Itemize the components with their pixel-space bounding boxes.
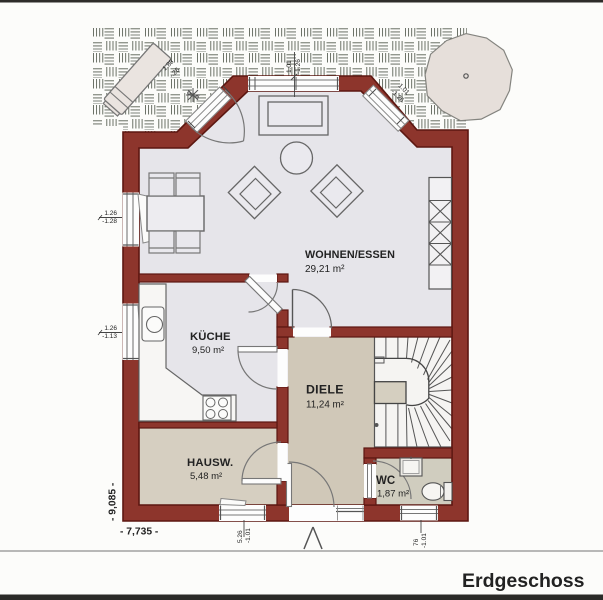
- svg-text:Erdgeschoss: Erdgeschoss: [462, 570, 585, 592]
- svg-text:76: 76: [413, 538, 420, 546]
- svg-text:-1.01: -1.01: [245, 528, 252, 543]
- svg-text:DIELE: DIELE: [306, 383, 344, 397]
- svg-text:WOHNEN/ESSEN: WOHNEN/ESSEN: [305, 249, 395, 261]
- svg-text:WC: WC: [376, 475, 395, 487]
- svg-text:29,21 m²: 29,21 m²: [305, 264, 345, 275]
- svg-text:1.26: 1.26: [104, 210, 117, 217]
- svg-text:- 7,735 -: - 7,735 -: [120, 527, 159, 538]
- svg-text:-1.13: -1.13: [102, 333, 117, 340]
- svg-text:1,87 m²: 1,87 m²: [377, 489, 409, 500]
- svg-text:-1.28: -1.28: [102, 218, 117, 225]
- svg-text:- 9,085 -: - 9,085 -: [108, 482, 119, 521]
- svg-text:KÜCHE: KÜCHE: [190, 330, 231, 343]
- svg-text:1.01: 1.01: [286, 60, 293, 73]
- svg-text:11,24 m²: 11,24 m²: [306, 400, 345, 411]
- svg-text:-1.01: -1.01: [421, 533, 428, 548]
- svg-text:9,50 m²: 9,50 m²: [192, 345, 224, 356]
- svg-text:1.26: 1.26: [104, 325, 117, 332]
- svg-text:HAUSW.: HAUSW.: [187, 457, 233, 469]
- svg-text:5,48 m²: 5,48 m²: [190, 471, 222, 482]
- svg-text:-1.26: -1.26: [295, 59, 302, 74]
- svg-text:5.26: 5.26: [237, 530, 244, 543]
